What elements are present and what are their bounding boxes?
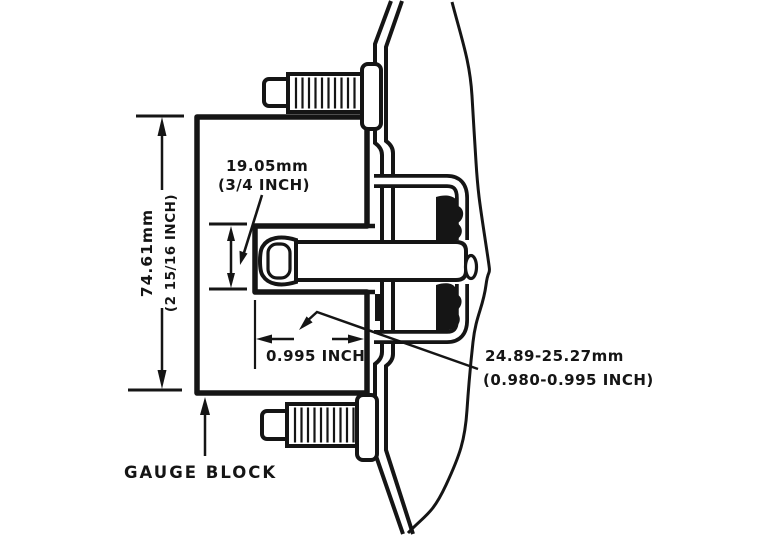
bearing-mm-label: 24.89-25.27mm xyxy=(485,347,624,365)
block-height-in-label: (2 15/16 INCH) xyxy=(163,194,179,312)
bearing-in-label: (0.980-0.995 INCH) xyxy=(483,371,654,389)
spindle xyxy=(260,238,477,285)
spindle-end-detail xyxy=(466,256,477,279)
spindle-shaft xyxy=(295,242,466,280)
dim-block-height: 74.61mm (2 15/16 INCH) xyxy=(128,116,184,390)
notch-mm-label: 19.05mm xyxy=(226,157,308,175)
spindle-nose-cap xyxy=(268,244,290,278)
gauge-block-label: GAUGE BLOCK xyxy=(124,463,277,482)
arrow-up xyxy=(158,117,167,136)
bottom-stud-washer xyxy=(357,395,377,460)
gauge-block-arrow xyxy=(200,397,210,415)
diagram-page: 74.61mm (2 15/16 INCH) 19.05mm (3/4 INCH… xyxy=(0,0,770,535)
diagram-canvas: 74.61mm (2 15/16 INCH) 19.05mm (3/4 INCH… xyxy=(0,0,770,535)
arrow-down xyxy=(158,370,167,389)
gap-in-label: 0.995 INCH xyxy=(266,347,365,365)
bottom-stud-thread-body xyxy=(287,404,362,446)
gauge-block-callout: GAUGE BLOCK xyxy=(124,397,277,482)
top-stud-washer xyxy=(362,64,381,129)
notch-in-label: (3/4 INCH) xyxy=(218,176,310,194)
bottom-stud xyxy=(262,395,377,460)
seal-segment xyxy=(375,294,384,321)
block-height-mm-label: 74.61mm xyxy=(138,209,156,297)
